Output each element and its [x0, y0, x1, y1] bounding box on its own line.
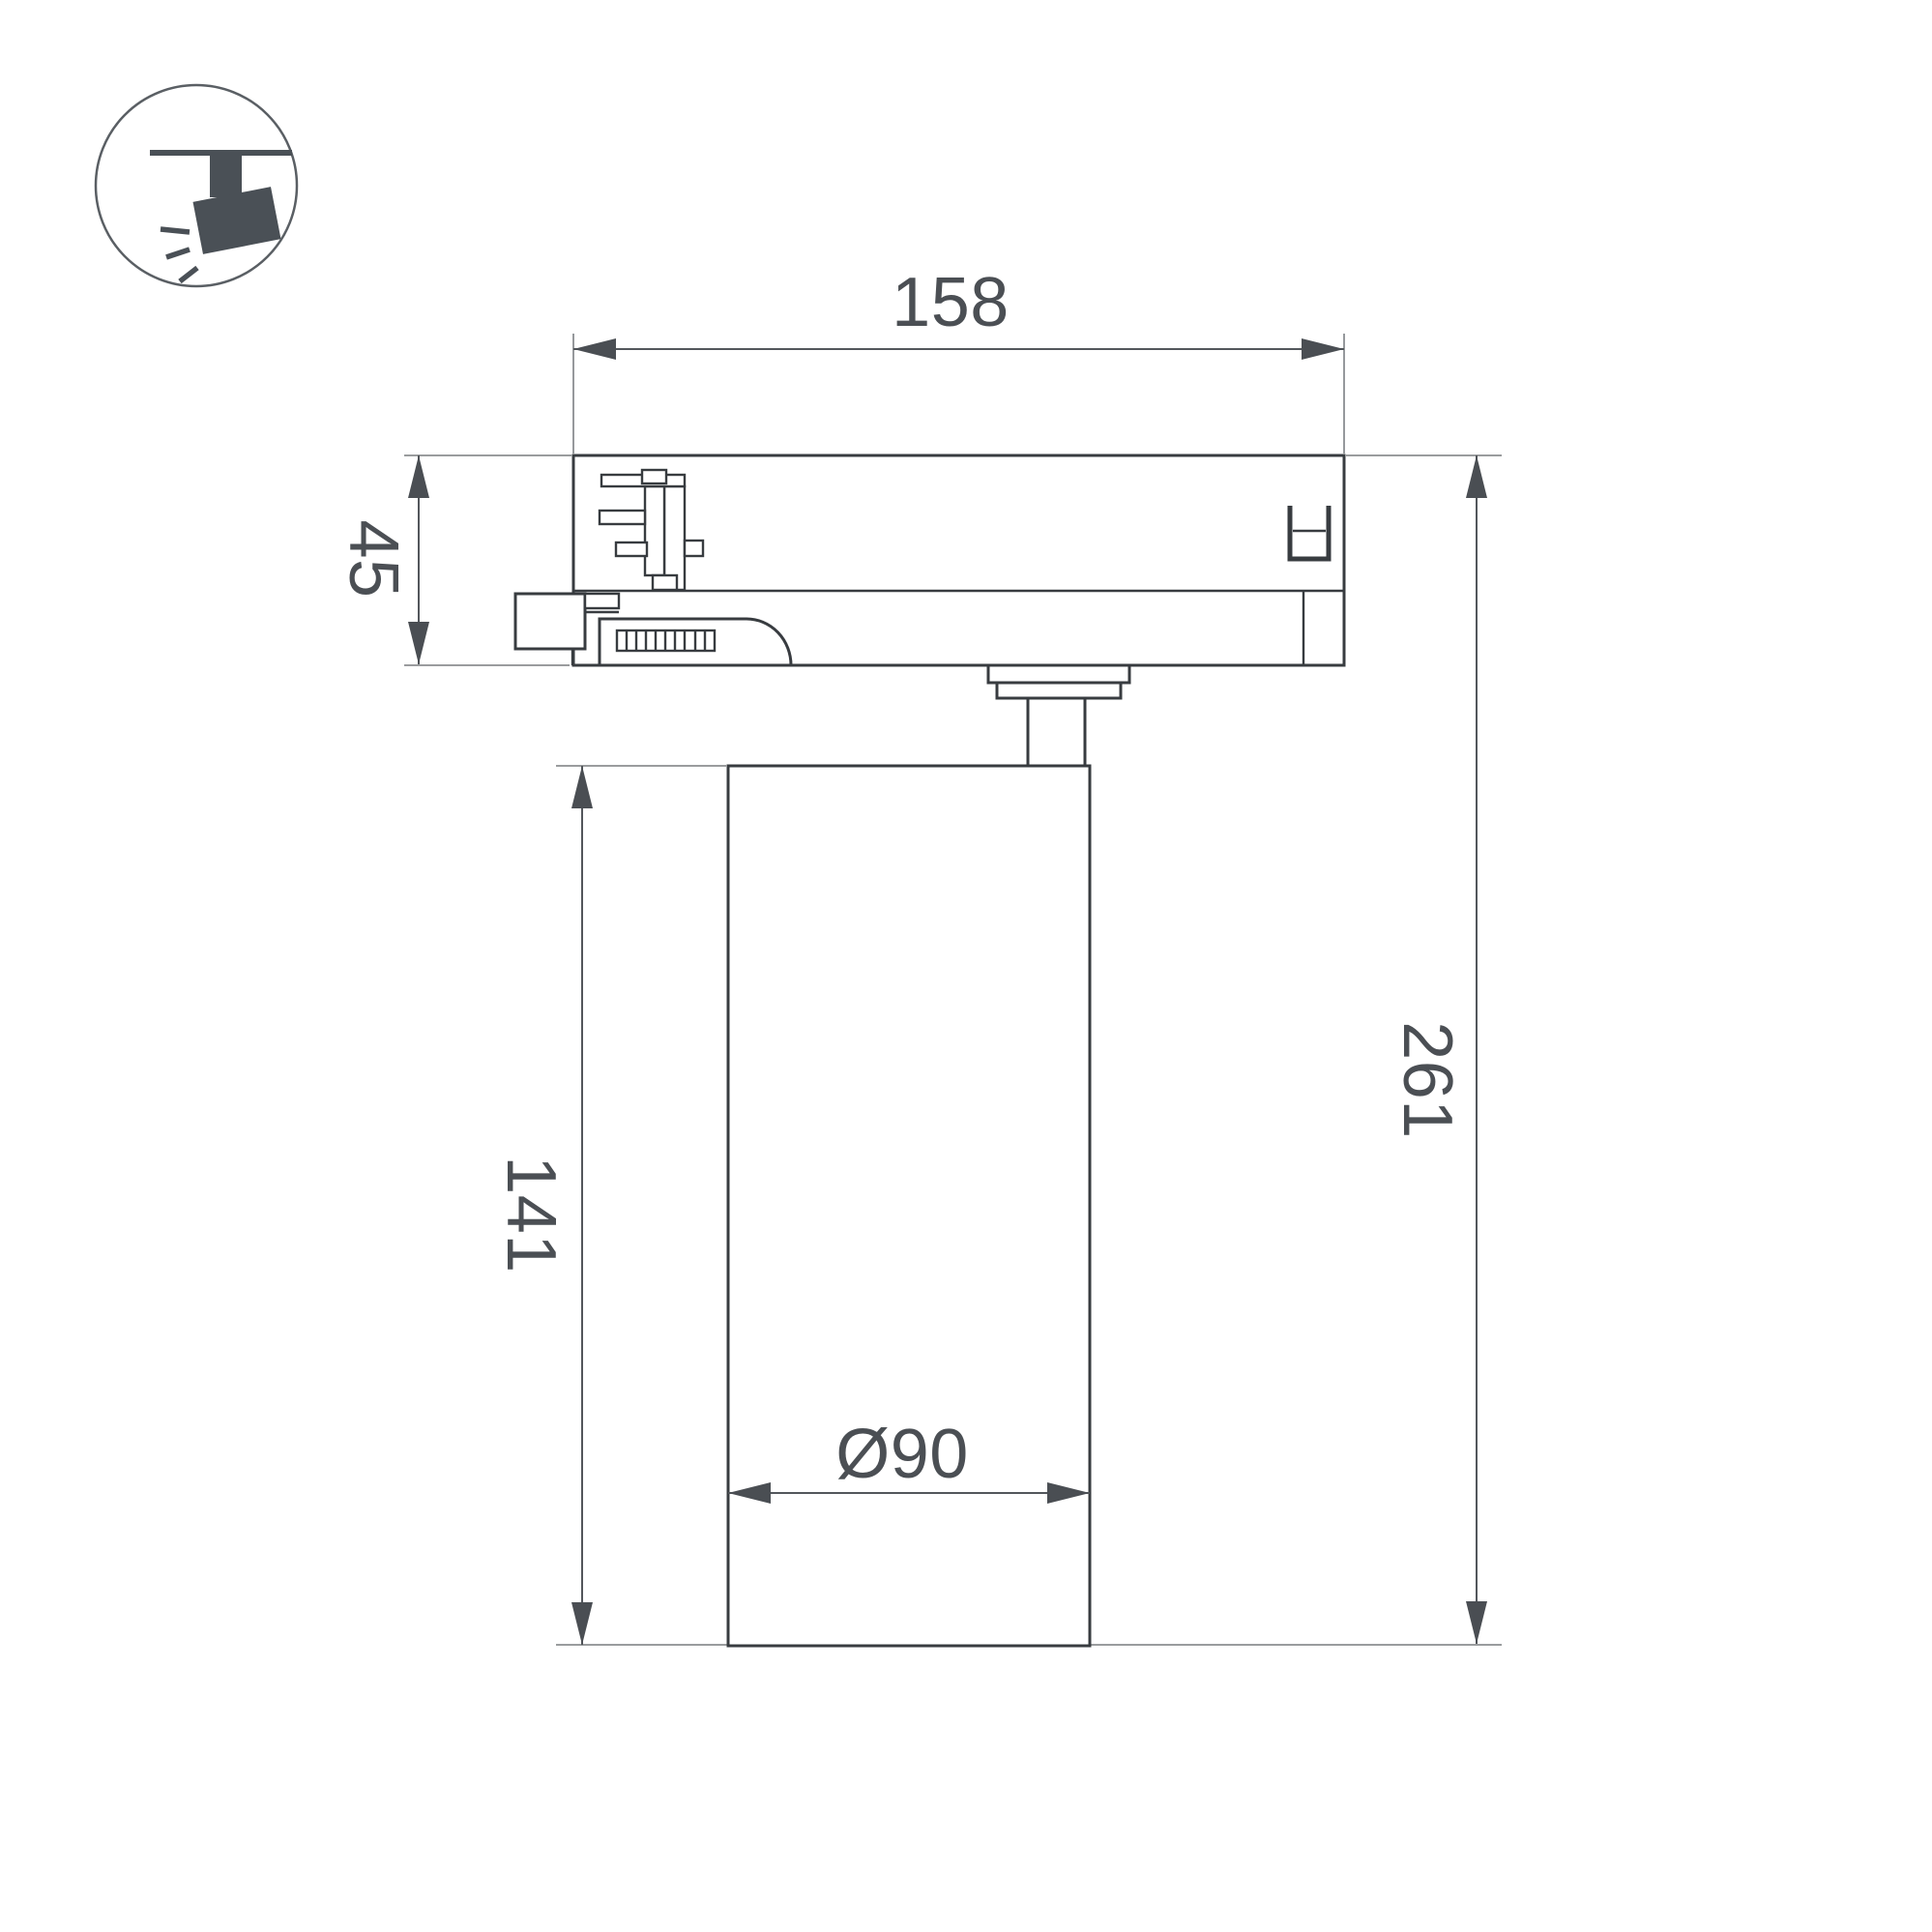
dimension-arrow	[1466, 1601, 1487, 1644]
dimension-arrow	[408, 622, 429, 664]
stem-flange-upper	[988, 665, 1129, 683]
contact-post	[645, 486, 664, 575]
contact-cap	[642, 470, 666, 483]
dimension-label-body-diameter: Ø90	[835, 1416, 969, 1493]
dimension-label-total-height: 261	[1389, 1021, 1466, 1139]
icon-light-rays	[161, 229, 197, 281]
adapter-grille	[617, 630, 715, 651]
drawing-page: 158 45 141 261 Ø90	[0, 0, 1932, 1932]
icon-track-stem	[210, 153, 242, 197]
dimension-arrow	[571, 1602, 593, 1645]
dimension-arrow	[1466, 455, 1487, 498]
icon-lamp-head	[193, 187, 281, 254]
icon-light-ray	[166, 249, 190, 257]
dimension-label-body-height: 141	[492, 1156, 570, 1273]
latch-spring-box	[585, 594, 619, 608]
dimension-arrow	[571, 766, 593, 808]
dimension-arrow	[408, 455, 429, 498]
icon-light-ray	[180, 268, 197, 281]
contact-side-tab	[685, 541, 703, 556]
latch-release-button	[515, 594, 585, 649]
dimension-arrow	[573, 338, 616, 360]
icon-circle-border	[96, 85, 297, 286]
mount-stem	[988, 665, 1129, 766]
ceiling-track-spotlight-icon	[96, 85, 297, 286]
stem-flange-lower	[997, 683, 1121, 698]
icon-light-ray	[161, 229, 190, 232]
dimension-arrow	[1302, 338, 1344, 360]
technical-drawing-canvas: 158 45 141 261 Ø90	[0, 0, 1932, 1932]
track-adapter	[515, 455, 1344, 665]
dimension-label-adapter-height: 45	[335, 519, 412, 598]
lamp-body-cylinder	[728, 766, 1090, 1646]
contact-prong-bottom	[616, 542, 647, 556]
dimension-label-adapter-width: 158	[892, 264, 1010, 341]
contact-prong-middle	[600, 511, 645, 524]
contact-foot	[653, 575, 677, 590]
